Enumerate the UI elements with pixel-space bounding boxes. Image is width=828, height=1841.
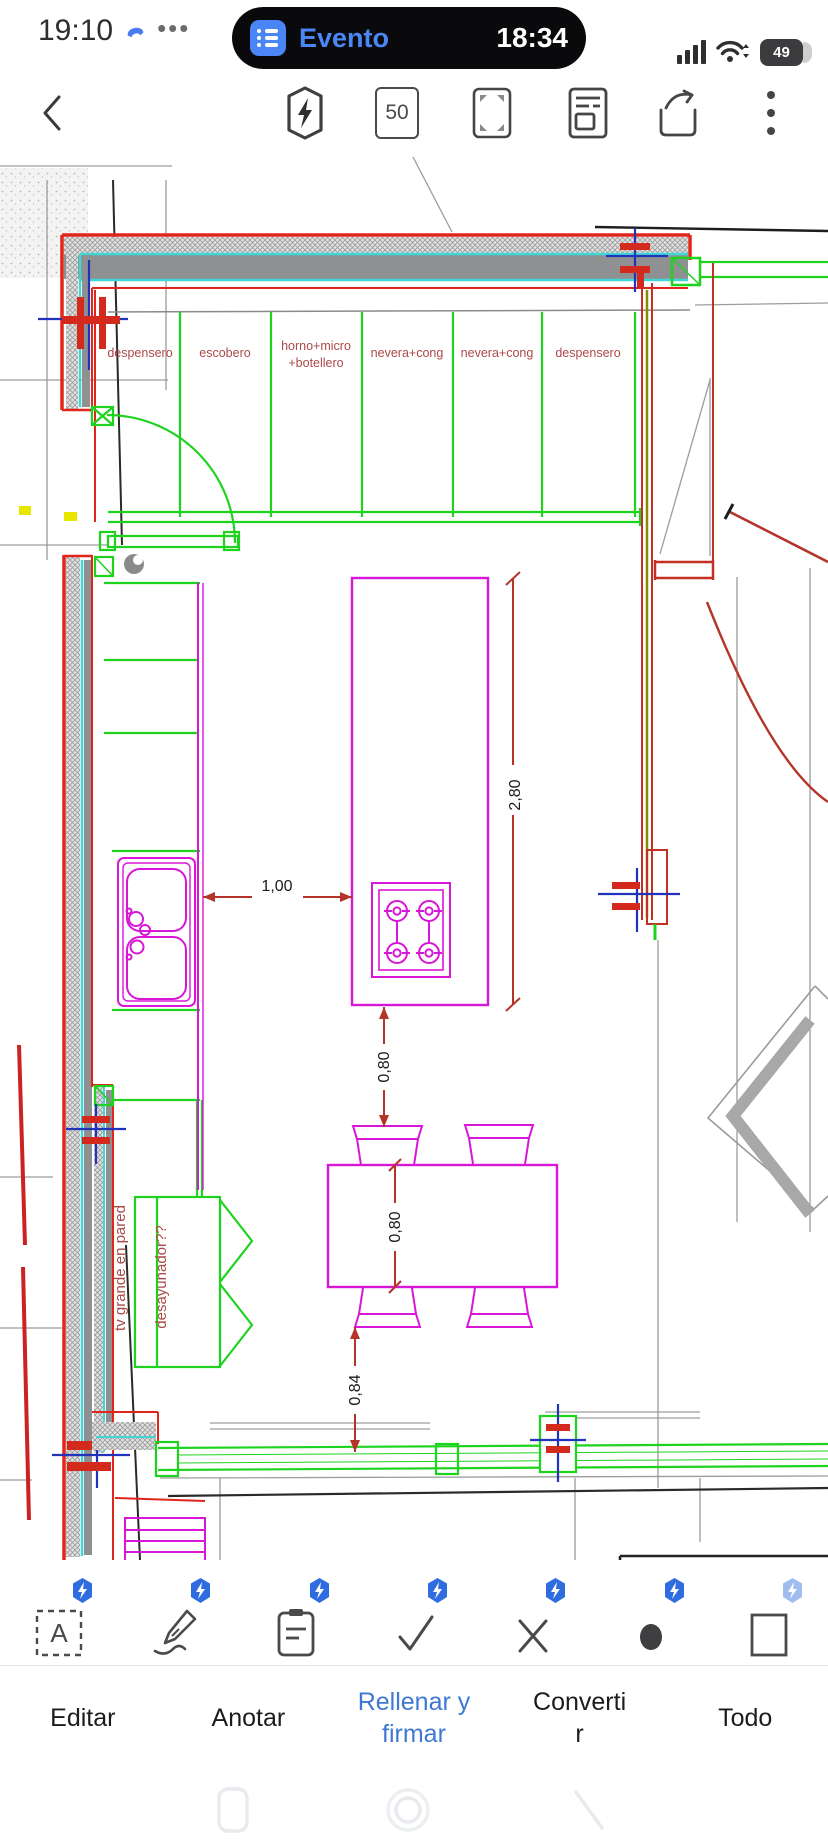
home-button[interactable] bbox=[384, 1786, 432, 1834]
right-wall-and-shaft bbox=[642, 258, 828, 920]
cabinet-label: escobero bbox=[199, 346, 250, 360]
bottom-window bbox=[92, 1404, 828, 1501]
door-stop-symbol bbox=[124, 554, 144, 574]
ai-badge-icon bbox=[662, 1577, 687, 1609]
dim-table-to-window: 0,84 bbox=[347, 1374, 364, 1405]
tab-editar[interactable]: Editar bbox=[0, 1666, 166, 1771]
signature-tool[interactable] bbox=[147, 1579, 207, 1659]
dimensions: 2,80 1,00 0,80 0,80 0,84 bbox=[203, 572, 524, 1452]
left-wall bbox=[64, 555, 113, 1560]
annotation-breakfast: desayunador?? bbox=[153, 1225, 170, 1328]
edit-text-tool[interactable]: A bbox=[29, 1579, 89, 1659]
battery-icon: 49 bbox=[760, 39, 812, 66]
android-nav-bar bbox=[0, 1770, 828, 1841]
viewer-toolbar: 50 bbox=[0, 75, 828, 150]
more-menu-icon[interactable] bbox=[765, 88, 777, 138]
ai-badge-icon bbox=[780, 1577, 805, 1609]
double-sink bbox=[118, 858, 195, 1006]
ai-badge-icon bbox=[188, 1577, 213, 1609]
tab-rellenar-y-firmar[interactable]: Rellenar y firmar bbox=[331, 1666, 497, 1771]
cooktop bbox=[372, 883, 450, 977]
signal-icon bbox=[677, 40, 706, 64]
annotation-tv: tv grande en pared bbox=[112, 1205, 129, 1331]
fit-page-icon[interactable] bbox=[470, 86, 514, 140]
page-indicator: 50 bbox=[385, 101, 408, 125]
top-wall bbox=[62, 235, 690, 410]
screen: { "status_bar": { "time": "19:10", "elli… bbox=[0, 0, 828, 1841]
recents-button[interactable] bbox=[215, 1786, 251, 1834]
cabinet-label: nevera+cong bbox=[461, 346, 534, 360]
cabinet-label: despensero bbox=[107, 346, 172, 360]
floor-plan-canvas[interactable]: despensero escobero horno+micro +botelle… bbox=[0, 150, 828, 1560]
ai-badge-icon bbox=[425, 1577, 450, 1609]
event-list-icon bbox=[250, 20, 286, 56]
tall-cabinets: despensero escobero horno+micro +botelle… bbox=[95, 290, 690, 526]
cabinet-label: nevera+cong bbox=[371, 346, 444, 360]
mode-tabs: Editar Anotar Rellenar y firmar Converti… bbox=[0, 1665, 828, 1771]
back-button[interactable] bbox=[37, 91, 67, 135]
cabinet-label: horno+micro bbox=[281, 339, 351, 353]
tab-convertir[interactable]: Convertir bbox=[497, 1666, 663, 1771]
dim-island-to-table: 0,80 bbox=[376, 1051, 393, 1082]
svg-text:A: A bbox=[50, 1618, 68, 1648]
cross-tool[interactable] bbox=[502, 1579, 562, 1659]
live-notification-pill[interactable]: Evento 18:34 bbox=[232, 7, 586, 69]
cabinet-label: despensero bbox=[555, 346, 620, 360]
cabinet-label: +botellero bbox=[288, 356, 343, 370]
checkmark-tool[interactable] bbox=[384, 1579, 444, 1659]
status-bar: 19:10 ••• Evento 18:34 49 bbox=[0, 0, 828, 75]
striped-element bbox=[125, 1518, 205, 1560]
dot-tool[interactable] bbox=[621, 1579, 681, 1659]
ai-badge-icon bbox=[543, 1577, 568, 1609]
ai-assistant-icon[interactable] bbox=[280, 85, 330, 141]
chairs bbox=[353, 1125, 533, 1327]
battery-percent: 49 bbox=[760, 39, 803, 66]
clock: 19:10 bbox=[38, 14, 113, 48]
phone-icon bbox=[123, 19, 147, 43]
entry-door bbox=[92, 407, 239, 550]
ai-badge-icon bbox=[307, 1577, 332, 1609]
ai-badge-icon bbox=[70, 1577, 95, 1609]
dim-island-length: 2,80 bbox=[507, 779, 524, 810]
wifi-icon bbox=[715, 36, 751, 64]
dining-table bbox=[328, 1165, 557, 1287]
share-icon[interactable] bbox=[652, 86, 704, 140]
tab-todo[interactable]: Todo bbox=[662, 1666, 828, 1771]
rectangle-tool[interactable] bbox=[739, 1579, 799, 1659]
quick-tools-row: A bbox=[0, 1560, 828, 1665]
form-tool[interactable] bbox=[266, 1579, 326, 1659]
document-page[interactable]: despensero escobero horno+micro +botelle… bbox=[0, 150, 828, 1560]
notification-app-label: Evento bbox=[299, 23, 389, 54]
dim-walkway: 1,00 bbox=[261, 878, 292, 895]
reader-view-icon[interactable] bbox=[565, 85, 611, 141]
dim-table-width: 0,80 bbox=[387, 1211, 404, 1242]
back-nav-button[interactable] bbox=[568, 1786, 610, 1834]
page-number-button[interactable]: 50 bbox=[375, 87, 419, 139]
tab-anotar[interactable]: Anotar bbox=[166, 1666, 332, 1771]
notification-dots-icon: ••• bbox=[157, 13, 190, 44]
notification-time: 18:34 bbox=[496, 22, 568, 54]
